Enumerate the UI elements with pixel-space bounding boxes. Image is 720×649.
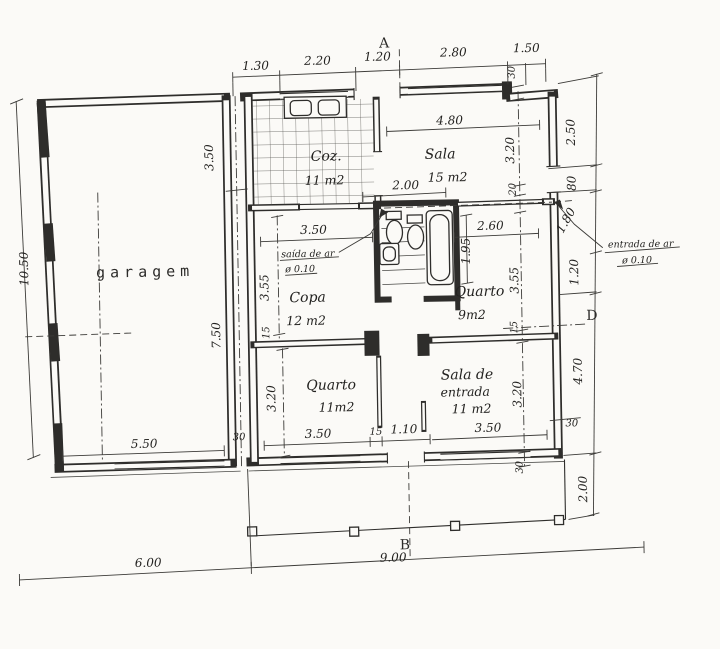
dim-bath-length: 1.95	[459, 238, 473, 265]
dim-top-4: 1.50	[513, 41, 540, 55]
dim-right-inner-0: 30	[507, 65, 518, 79]
bath-sink	[380, 243, 399, 264]
room-copa-label: Copa	[289, 290, 326, 307]
kitchen-sink	[284, 96, 346, 118]
section-marker-d: D	[586, 308, 598, 324]
dim-top-2: 1.20	[364, 49, 391, 63]
dim-right-inner-1: 3.20	[503, 137, 517, 164]
room-garage-label: garagem	[96, 262, 195, 282]
room-entry-label1: Sala de	[441, 367, 494, 384]
dim-right-inner-2: 20	[508, 182, 519, 197]
dim-garage-v-1: 7.50	[209, 322, 223, 349]
bidet	[407, 215, 424, 249]
dim-right-outer-0: 2.50	[564, 118, 578, 146]
dim-right-outer-4: 4.70	[571, 357, 585, 385]
right-wall-opening	[546, 166, 560, 193]
room-entry-area: 11 m2	[452, 401, 492, 417]
room-kitchen-label: Coz.	[311, 148, 342, 165]
dim-hall-wall: 15	[369, 427, 382, 438]
room-copa-area: 12 m2	[286, 313, 326, 329]
dim-copa-width: 3.50	[300, 223, 327, 237]
dim-bottom-0: 6.00	[135, 555, 162, 569]
dim-sala-width: 4.80	[435, 113, 463, 127]
toilet	[386, 211, 403, 244]
room-kitchen-area: 11 m2	[305, 172, 345, 188]
dim-quarto9-width: 2.60	[476, 218, 504, 232]
dim-quarto11-width: 3.50	[304, 427, 331, 441]
room-sala-label: Sala	[425, 146, 456, 163]
dim-entry-width: 3.50	[474, 421, 501, 435]
vent-intake-label: entrada de ar	[608, 238, 675, 250]
porch-column	[248, 527, 257, 536]
dim-bottom-1: 9.00	[380, 550, 407, 564]
room-quarto9-area: 9m2	[458, 307, 486, 322]
room-sala-area: 15 m2	[428, 169, 468, 185]
room-quarto11-label: Quarto	[306, 377, 356, 394]
dim-right-inner-4: 15	[509, 321, 520, 334]
dim-right-inner-5: 3.20	[510, 380, 524, 407]
dim-right-outer-1: 80	[565, 175, 579, 191]
room-entry-label2: entrada	[440, 384, 490, 400]
back-door-opening	[387, 451, 424, 463]
bathroom-fixtures	[379, 210, 453, 285]
dim-top-1: 2.20	[303, 53, 331, 67]
floor-plan-drawing: saída de ar ø 0.10 entrada de ar ø 0.10	[0, 0, 720, 649]
dim-copa-wall: 15	[261, 326, 272, 339]
dim-copa-height: 3.55	[257, 274, 271, 301]
porch-column	[350, 527, 359, 536]
dim-right-outer-5: 2.00	[576, 475, 590, 503]
dim-garage-b-0: 5.50	[131, 437, 158, 451]
hall-right-jamb	[417, 334, 429, 356]
blueprint-page: saída de ar ø 0.10 entrada de ar ø 0.10	[0, 0, 720, 649]
room-quarto11-area: 11m2	[319, 399, 355, 415]
room-quarto9-label: Quarto	[455, 283, 505, 300]
porch-column	[554, 515, 563, 524]
dim-right-outer-3: 1.20	[567, 258, 581, 285]
dim-top-3: 2.80	[439, 45, 467, 59]
dim-right-step: 30	[565, 418, 579, 429]
dim-right-inner-3: 3.55	[507, 267, 521, 294]
dim-top-0: 1.30	[242, 59, 269, 73]
dim-hall-width: 1.10	[390, 422, 417, 436]
dim-garage-v-0: 3.50	[202, 144, 216, 171]
dim-right-inner-6: 30	[514, 460, 525, 474]
dim-sala-opening: 2.00	[391, 178, 419, 192]
bathtub	[426, 210, 453, 284]
hall-left-jamb	[364, 331, 379, 356]
porch-column	[451, 521, 460, 530]
dim-garage-b-1: 30	[233, 432, 247, 443]
dim-quarto11-height: 3.20	[264, 385, 278, 412]
dim-left: 10.50	[17, 251, 32, 286]
